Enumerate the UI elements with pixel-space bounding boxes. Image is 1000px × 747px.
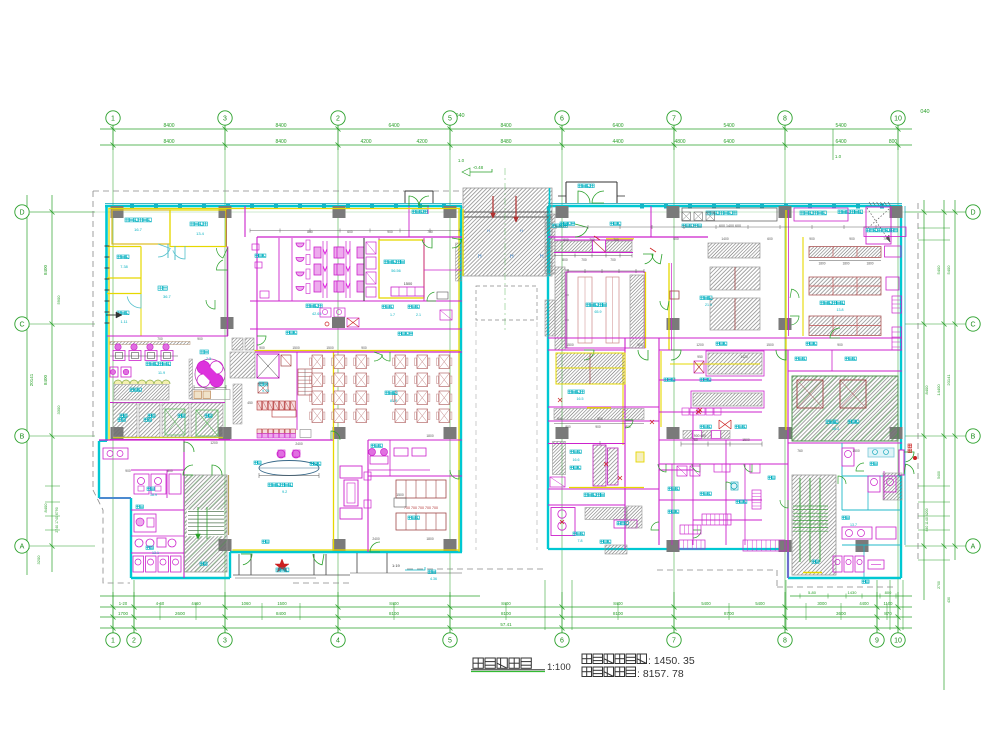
svg-text:1420: 1420 xyxy=(740,355,748,359)
svg-text:2400: 2400 xyxy=(372,537,380,541)
svg-text:700: 700 xyxy=(157,337,163,341)
svg-text:C: C xyxy=(19,322,24,329)
svg-text:2: 2 xyxy=(132,638,136,645)
svg-text:A: A xyxy=(971,544,976,551)
svg-text:8: 8 xyxy=(783,116,787,123)
svg-text:H: H xyxy=(540,254,544,260)
svg-text:1.7: 1.7 xyxy=(390,313,395,317)
svg-text:H: H xyxy=(478,254,482,260)
svg-text:900: 900 xyxy=(125,469,131,473)
svg-text:1500: 1500 xyxy=(742,438,750,442)
svg-text:450: 450 xyxy=(247,401,253,405)
svg-text:4200: 4200 xyxy=(360,139,371,145)
svg-text:5400: 5400 xyxy=(936,265,941,275)
svg-text:2: 2 xyxy=(336,116,340,123)
svg-text:900: 900 xyxy=(809,237,815,241)
svg-text:5-80: 5-80 xyxy=(808,590,817,595)
svg-text:8400: 8400 xyxy=(500,123,511,129)
svg-text:1800: 1800 xyxy=(426,537,434,541)
svg-text:800: 800 xyxy=(563,238,569,242)
svg-text:1500: 1500 xyxy=(852,449,860,453)
svg-text:9.76: 9.76 xyxy=(262,389,269,393)
svg-text:2400: 2400 xyxy=(295,442,303,446)
svg-text:5400: 5400 xyxy=(946,265,951,275)
svg-text:800: 800 xyxy=(625,425,631,429)
svg-text:11.9: 11.9 xyxy=(158,371,165,375)
svg-text:21.9: 21.9 xyxy=(705,303,712,307)
svg-text:900: 900 xyxy=(361,346,367,350)
svg-text:900: 900 xyxy=(637,343,643,347)
svg-text:800: 800 xyxy=(885,590,892,595)
svg-text:1400: 1400 xyxy=(721,237,729,241)
svg-text:8100: 8100 xyxy=(501,611,512,616)
svg-text:900: 900 xyxy=(259,346,265,350)
svg-text:3: 3 xyxy=(223,116,227,123)
svg-text:1:19: 1:19 xyxy=(392,563,401,568)
svg-text:6400: 6400 xyxy=(723,139,734,145)
svg-text:10: 10 xyxy=(894,638,902,645)
svg-text:1:100: 1:100 xyxy=(547,662,571,673)
svg-text:8400: 8400 xyxy=(43,264,48,275)
svg-text:2700: 2700 xyxy=(937,581,941,589)
svg-text:4800: 4800 xyxy=(674,139,685,145)
svg-text:1500: 1500 xyxy=(404,282,412,286)
svg-text:600: 600 xyxy=(767,237,773,241)
svg-text:600: 600 xyxy=(673,237,679,241)
svg-text:1-20: 1-20 xyxy=(119,601,128,606)
svg-text:9.2: 9.2 xyxy=(282,490,287,494)
svg-text:: 8157. 78: : 8157. 78 xyxy=(637,668,684,680)
svg-text:1800: 1800 xyxy=(842,262,849,266)
svg-text:8400: 8400 xyxy=(43,503,48,513)
svg-text:800: 800 xyxy=(167,469,173,473)
svg-text:8400: 8400 xyxy=(389,601,399,606)
svg-text:56.56: 56.56 xyxy=(391,269,401,273)
svg-text:1800: 1800 xyxy=(818,262,825,266)
svg-text:800: 800 xyxy=(562,258,568,262)
svg-text:1.0: 1.0 xyxy=(458,158,465,163)
svg-text:950: 950 xyxy=(697,355,703,359)
svg-text:20141: 20141 xyxy=(946,374,951,386)
svg-text:5400: 5400 xyxy=(701,601,711,606)
svg-text:1500: 1500 xyxy=(277,601,287,606)
svg-text:7: 7 xyxy=(672,116,676,123)
svg-text:20141: 20141 xyxy=(29,373,34,386)
svg-text:5400: 5400 xyxy=(755,601,765,606)
svg-text:1.11: 1.11 xyxy=(120,320,127,324)
svg-text:81.9: 81.9 xyxy=(390,399,397,403)
svg-text:3000: 3000 xyxy=(817,601,827,606)
svg-text:8400: 8400 xyxy=(275,139,286,145)
svg-text:1: 1 xyxy=(111,638,115,645)
svg-text:700: 700 xyxy=(613,238,619,242)
svg-text:8400: 8400 xyxy=(924,385,929,395)
svg-text:700: 700 xyxy=(581,258,587,262)
svg-text:1: 1 xyxy=(111,116,115,123)
svg-text:1500: 1500 xyxy=(396,493,404,497)
svg-text:18.9: 18.9 xyxy=(150,493,157,497)
svg-text:600 1400 600: 600 1400 600 xyxy=(719,224,741,228)
svg-text:5: 5 xyxy=(448,638,452,645)
svg-text:57.41: 57.41 xyxy=(500,622,512,627)
svg-text:4460: 4460 xyxy=(191,601,201,606)
svg-text:8100: 8100 xyxy=(389,611,400,616)
svg-text:6400: 6400 xyxy=(388,123,399,129)
svg-text:9: 9 xyxy=(875,638,879,645)
svg-text:6400: 6400 xyxy=(835,139,846,145)
svg-text:8100: 8100 xyxy=(613,611,624,616)
svg-text:800: 800 xyxy=(889,139,898,145)
svg-text:900: 900 xyxy=(837,343,843,347)
svg-text:D: D xyxy=(19,210,24,217)
svg-text:8400: 8400 xyxy=(163,123,174,129)
svg-text:8400: 8400 xyxy=(501,601,511,606)
svg-text:13.1: 13.1 xyxy=(152,551,159,555)
svg-text:7.8: 7.8 xyxy=(578,539,583,543)
svg-text:1100: 1100 xyxy=(883,601,893,606)
svg-text:: 1450. 35: : 1450. 35 xyxy=(648,655,695,667)
svg-text:8400: 8400 xyxy=(163,139,174,145)
svg-text:5400: 5400 xyxy=(937,471,941,479)
svg-text:18.3: 18.3 xyxy=(832,427,839,431)
svg-text:700 700 700 700 700: 700 700 700 700 700 xyxy=(404,506,438,510)
svg-text:3200: 3200 xyxy=(36,555,41,565)
svg-text:14400: 14400 xyxy=(936,384,941,396)
svg-text:2740 1740 6790: 2740 1740 6790 xyxy=(55,507,59,532)
svg-text:3300: 3300 xyxy=(56,405,61,415)
svg-text:800: 800 xyxy=(565,425,571,429)
svg-text:430: 430 xyxy=(947,597,951,603)
svg-text:440 1140 4200: 440 1140 4200 xyxy=(925,508,929,531)
svg-text:700: 700 xyxy=(589,238,595,242)
svg-text:36.7: 36.7 xyxy=(163,294,172,299)
svg-text:1.0: 1.0 xyxy=(835,154,842,159)
svg-text:4200: 4200 xyxy=(416,139,427,145)
svg-text:5: 5 xyxy=(448,116,452,123)
svg-text:-0.48: -0.48 xyxy=(473,165,484,170)
svg-text:B: B xyxy=(971,434,976,441)
svg-text:16.5: 16.5 xyxy=(577,397,584,401)
svg-text:7.38: 7.38 xyxy=(120,265,127,269)
svg-text:6400: 6400 xyxy=(612,123,623,129)
svg-text:8400: 8400 xyxy=(276,611,287,616)
svg-text:700: 700 xyxy=(883,237,889,241)
svg-text:870: 870 xyxy=(884,611,892,616)
svg-text:A: A xyxy=(20,544,25,551)
svg-text:750: 750 xyxy=(692,438,698,442)
svg-text:13.7: 13.7 xyxy=(850,523,857,527)
svg-text:10: 10 xyxy=(894,116,902,123)
svg-text:13.8: 13.8 xyxy=(837,308,844,312)
svg-text:D: D xyxy=(970,210,975,217)
svg-text:900: 900 xyxy=(557,417,563,421)
svg-text:700: 700 xyxy=(610,258,616,262)
svg-text:7.3: 7.3 xyxy=(206,357,211,361)
svg-text:800: 800 xyxy=(597,417,603,421)
svg-text:8400: 8400 xyxy=(43,374,48,385)
svg-text:1800: 1800 xyxy=(426,434,434,438)
svg-text:1800: 1800 xyxy=(866,262,873,266)
svg-text:H: H xyxy=(487,228,490,233)
svg-text:6: 6 xyxy=(560,116,564,123)
svg-text:1700: 1700 xyxy=(118,611,129,616)
svg-text:1200: 1200 xyxy=(696,343,704,347)
svg-text:4400: 4400 xyxy=(612,139,623,145)
svg-text:65.9: 65.9 xyxy=(595,310,602,314)
svg-text:1430: 1430 xyxy=(848,590,858,595)
svg-text:H: H xyxy=(510,254,514,260)
svg-text:4400: 4400 xyxy=(859,601,869,606)
svg-text:8400: 8400 xyxy=(275,123,286,129)
svg-text:2.1: 2.1 xyxy=(416,313,421,317)
svg-text:760: 760 xyxy=(797,449,803,453)
svg-text:16.6: 16.6 xyxy=(573,458,580,462)
svg-text:1500: 1500 xyxy=(566,343,574,347)
svg-text:5400: 5400 xyxy=(835,123,846,129)
svg-text:8700: 8700 xyxy=(724,611,735,616)
svg-text:900: 900 xyxy=(849,237,855,241)
svg-text:1500: 1500 xyxy=(326,346,334,350)
svg-text:8400: 8400 xyxy=(613,601,623,606)
svg-text:1500: 1500 xyxy=(292,346,300,350)
svg-text:8: 8 xyxy=(783,638,787,645)
svg-text:7: 7 xyxy=(672,638,676,645)
svg-text:3600: 3600 xyxy=(836,611,847,616)
svg-text:900: 900 xyxy=(595,425,601,429)
svg-text:900: 900 xyxy=(197,337,203,341)
svg-text:H: H xyxy=(520,228,523,233)
svg-text:4.36: 4.36 xyxy=(430,577,437,581)
svg-text:4: 4 xyxy=(336,638,340,645)
svg-text:C: C xyxy=(970,322,975,329)
svg-text:1500: 1500 xyxy=(766,343,774,347)
svg-text:5400: 5400 xyxy=(723,123,734,129)
svg-text:2600: 2600 xyxy=(175,611,186,616)
svg-text:6: 6 xyxy=(560,638,564,645)
svg-text:900 600: 900 600 xyxy=(694,434,706,438)
svg-text:16.7: 16.7 xyxy=(134,227,143,232)
svg-text:8480: 8480 xyxy=(500,139,511,145)
svg-text:13.4: 13.4 xyxy=(196,231,205,236)
svg-text:1200: 1200 xyxy=(210,441,218,445)
svg-text:5900: 5900 xyxy=(56,295,61,305)
svg-text:3: 3 xyxy=(223,638,227,645)
svg-text:040: 040 xyxy=(920,109,929,115)
svg-text:1060: 1060 xyxy=(241,601,251,606)
svg-text:4-60: 4-60 xyxy=(156,601,165,606)
svg-text:B: B xyxy=(20,434,25,441)
